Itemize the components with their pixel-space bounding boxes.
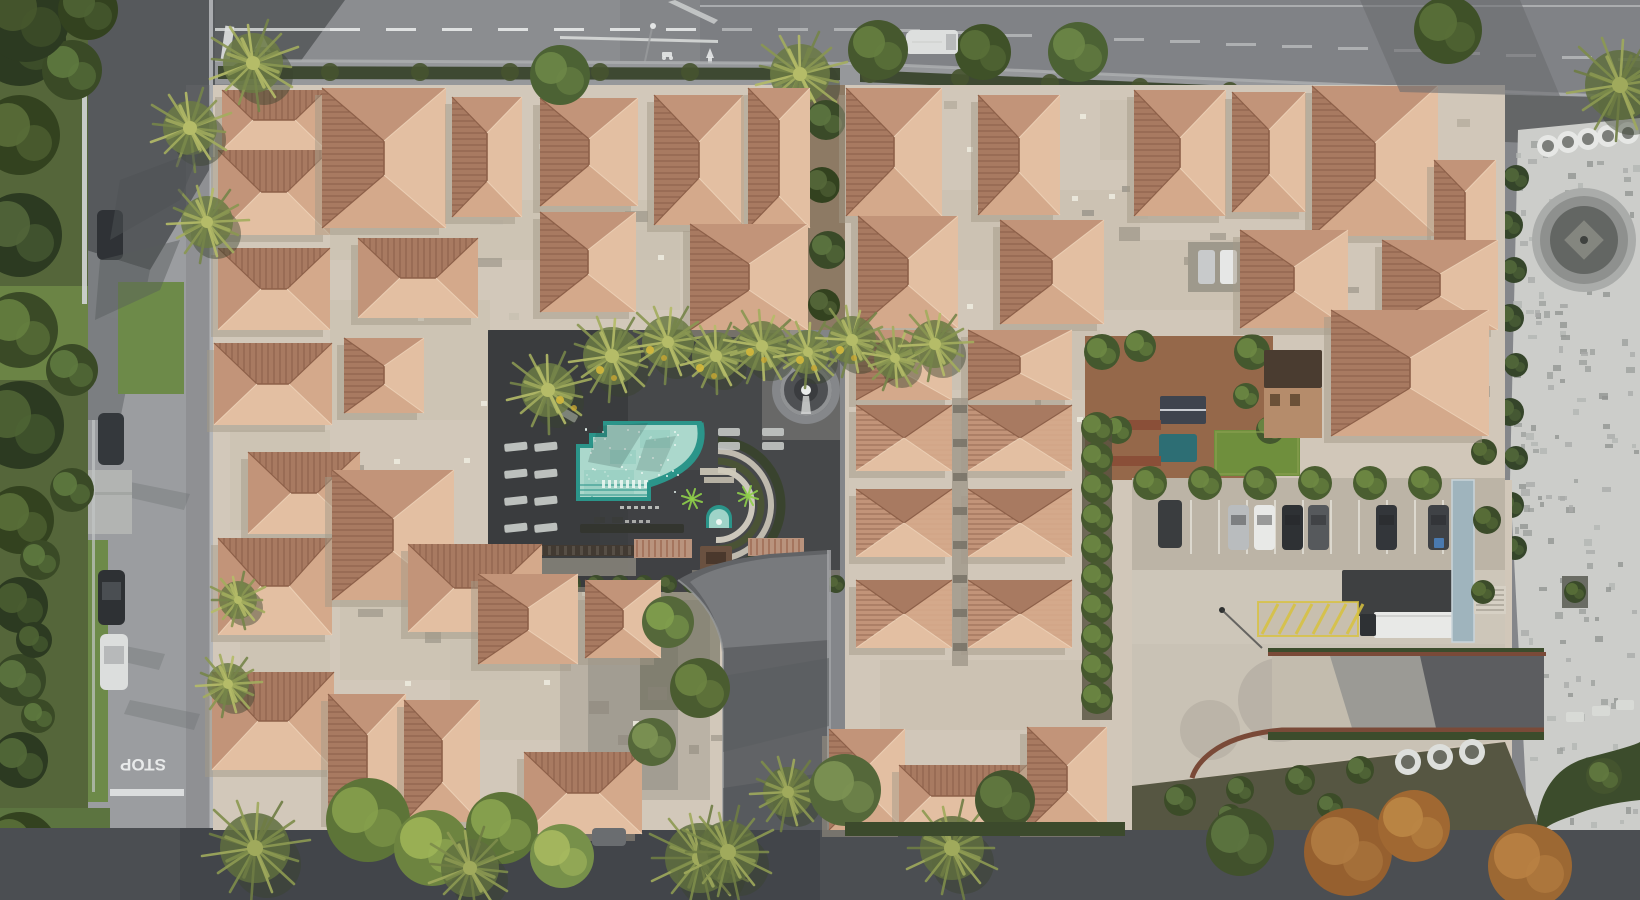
svg-text:STOP: STOP [120,755,166,774]
